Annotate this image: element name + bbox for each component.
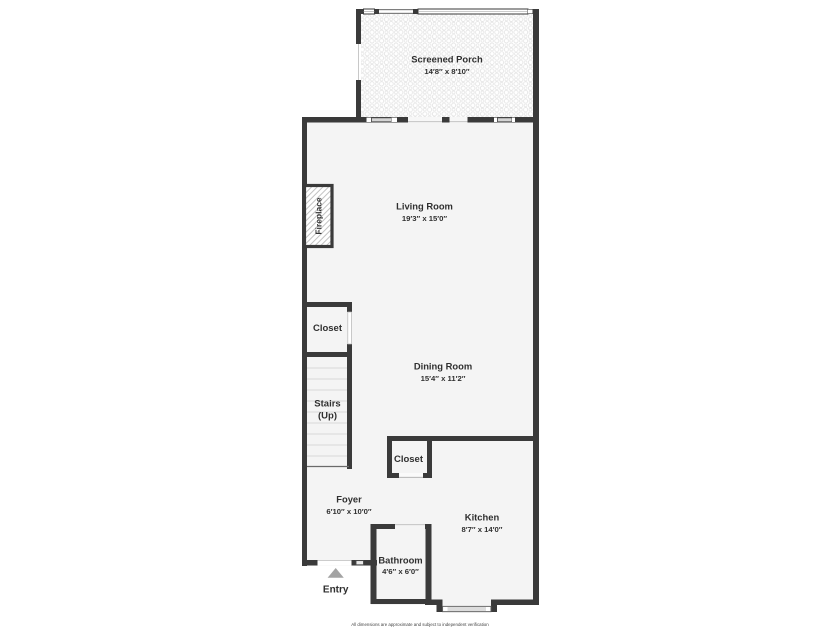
svg-text:Screened Porch: Screened Porch [411,54,483,65]
svg-text:19′3″ x 15′0″: 19′3″ x 15′0″ [402,214,448,223]
svg-text:Closet: Closet [313,323,343,334]
svg-text:Stairs: Stairs [314,399,340,410]
svg-text:15′4″ x 11′2″: 15′4″ x 11′2″ [421,374,466,383]
svg-text:14′8″ x 8′10″: 14′8″ x 8′10″ [424,67,470,76]
svg-text:Foyer: Foyer [336,494,362,505]
svg-text:Closet: Closet [394,454,424,465]
svg-text:Bathroom: Bathroom [378,555,422,566]
svg-text:Kitchen: Kitchen [465,512,500,523]
svg-text:(Up): (Up) [318,411,337,422]
svg-text:8′7″ x 14′0″: 8′7″ x 14′0″ [462,525,503,534]
svg-text:Entry: Entry [323,585,349,596]
svg-text:4′6″ x 6′0″: 4′6″ x 6′0″ [382,567,419,576]
svg-text:Living Room: Living Room [396,201,453,212]
svg-text:Fireplace: Fireplace [314,197,324,235]
svg-text:All dimensions are approximate: All dimensions are approximate and subje… [351,622,489,627]
svg-text:6′10″ x 10′0″: 6′10″ x 10′0″ [326,507,372,516]
svg-text:Dining Room: Dining Room [414,361,472,372]
